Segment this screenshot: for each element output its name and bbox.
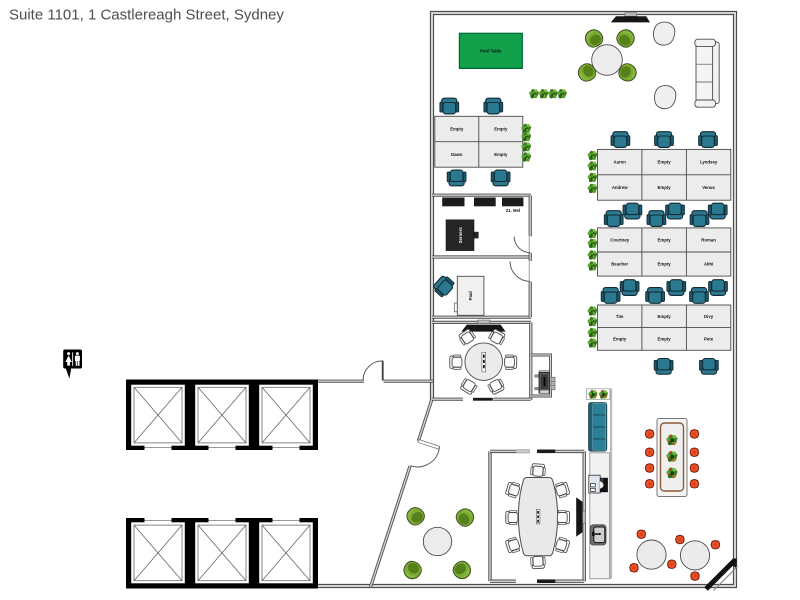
- svg-text:Divy: Divy: [704, 314, 714, 319]
- svg-text:Empty: Empty: [658, 314, 672, 319]
- svg-text:Andrew: Andrew: [612, 185, 628, 190]
- svg-text:Empty: Empty: [658, 160, 672, 165]
- svg-text:Suite 1101, 1 Castlereagh Stre: Suite 1101, 1 Castlereagh Street, Sydney: [9, 7, 284, 24]
- svg-text:Empty: Empty: [494, 127, 508, 132]
- svg-text:Abhi: Abhi: [704, 262, 714, 267]
- svg-text:Empty: Empty: [658, 238, 672, 243]
- svg-text:Aaron: Aaron: [613, 160, 626, 165]
- svg-text:Empty: Empty: [658, 185, 672, 190]
- svg-text:Empty: Empty: [494, 152, 508, 157]
- svg-text:Dawn: Dawn: [451, 152, 463, 157]
- svg-text:21. Mel: 21. Mel: [506, 208, 520, 213]
- svg-text:Roman: Roman: [701, 238, 716, 243]
- svg-text:Beacher: Beacher: [611, 262, 628, 267]
- svg-text:Pete: Pete: [704, 337, 714, 342]
- svg-text:Empty: Empty: [450, 127, 464, 132]
- svg-text:Venus: Venus: [702, 185, 715, 190]
- svg-text:Empty: Empty: [658, 262, 672, 267]
- svg-text:Lyndsey: Lyndsey: [700, 160, 718, 165]
- svg-text:Pool Table: Pool Table: [480, 49, 502, 54]
- svg-text:Paul: Paul: [468, 291, 473, 300]
- svg-text:Empty: Empty: [658, 337, 672, 342]
- svg-text:Servers: Servers: [458, 227, 463, 244]
- svg-text:Tim: Tim: [616, 314, 624, 319]
- svg-text:Empty: Empty: [613, 337, 627, 342]
- svg-text:Courtney: Courtney: [610, 238, 629, 243]
